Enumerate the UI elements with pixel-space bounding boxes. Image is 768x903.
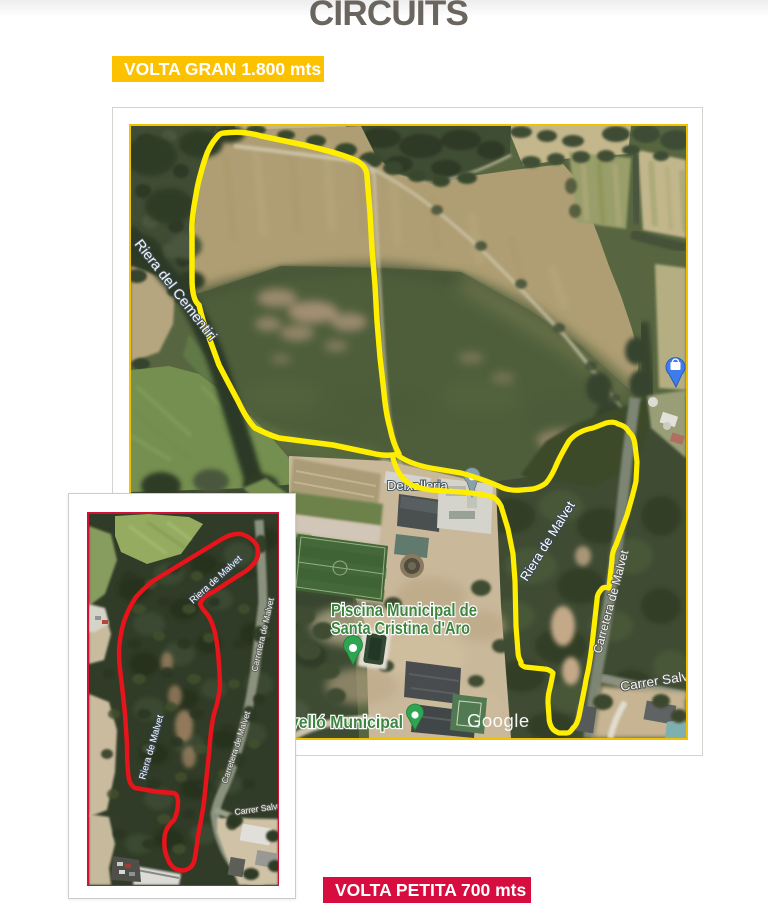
svg-text:velló Municipal: velló Municipal: [290, 712, 403, 732]
svg-text:Santa Cristina d'Aro: Santa Cristina d'Aro: [331, 618, 470, 638]
svg-text:Piscina Municipal de: Piscina Municipal de: [331, 600, 477, 620]
svg-text:Google: Google: [467, 710, 530, 731]
